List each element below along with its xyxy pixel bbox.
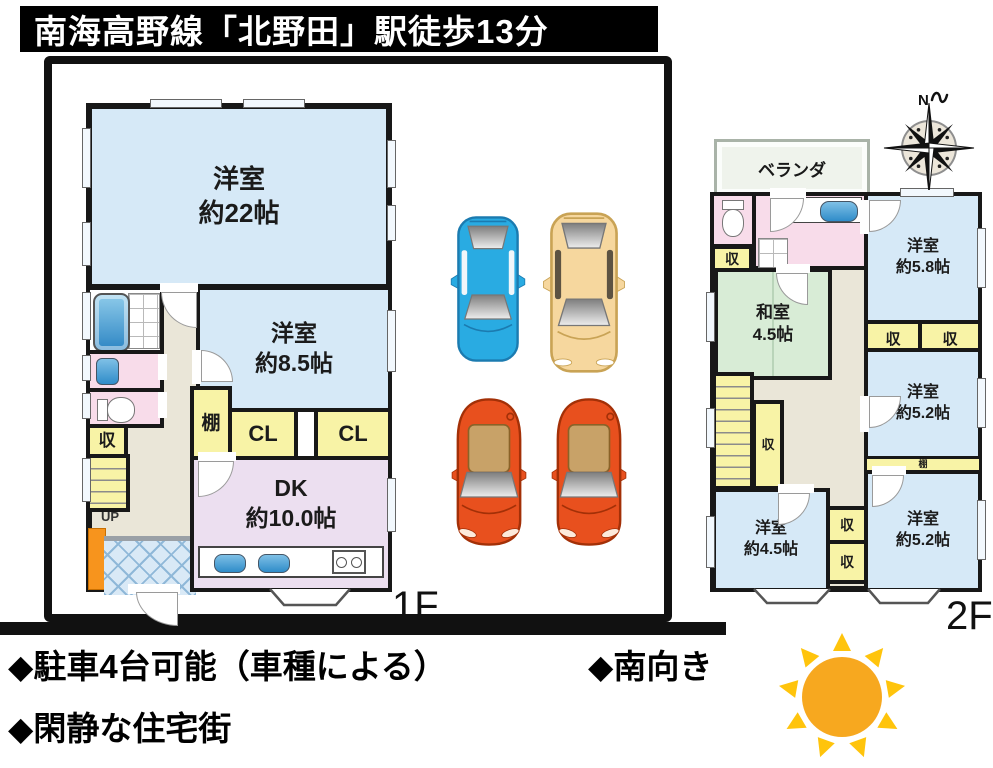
page-title: 南海高野線「北野田」駅徒歩13分 bbox=[34, 5, 549, 53]
toilet-icon bbox=[107, 397, 135, 423]
f2-room-45-size: 約4.5帖 bbox=[744, 540, 798, 561]
f2-washitsu-name: 和室 bbox=[756, 302, 790, 324]
floorplan-flyer: 南海高野線「北野田」駅徒歩13分 洋室 約22帖 収 UP 洋室 約8.5帖 棚… bbox=[0, 0, 993, 768]
door-opening bbox=[192, 350, 201, 384]
bath-tile-floor bbox=[128, 293, 160, 349]
window bbox=[387, 205, 396, 241]
f1-closet-2-label: CL bbox=[338, 420, 367, 449]
f1-stairs bbox=[86, 454, 130, 512]
door-opening bbox=[860, 200, 869, 234]
f2-storage-d-label: 収 bbox=[761, 437, 774, 454]
window bbox=[977, 378, 986, 428]
f2-storage-f-label: 収 bbox=[840, 553, 854, 571]
bay-window bbox=[752, 588, 832, 606]
f2-room-52a-name: 洋室 bbox=[907, 383, 939, 404]
bathtub-icon bbox=[93, 293, 130, 352]
f1-shelf-label: 棚 bbox=[201, 412, 220, 437]
door-opening bbox=[158, 392, 167, 418]
f1-storage-label: 収 bbox=[99, 430, 116, 452]
car-tan-icon bbox=[540, 210, 628, 375]
f2-storage-e: 収 bbox=[826, 506, 868, 544]
window bbox=[82, 393, 91, 419]
f2-storage-e-label: 収 bbox=[840, 516, 854, 534]
bay-window bbox=[268, 588, 352, 608]
door-opening bbox=[778, 484, 814, 493]
f1-closet-2: CL bbox=[314, 408, 392, 460]
footer-parking: ◆駐車4台可能（車種による） bbox=[8, 640, 447, 688]
car-orange-1-icon bbox=[448, 396, 530, 548]
door-opening bbox=[770, 188, 806, 198]
road-line bbox=[0, 622, 726, 635]
window bbox=[977, 228, 986, 288]
car-orange-2-icon bbox=[548, 396, 630, 548]
window bbox=[82, 128, 91, 188]
footer-facing: ◆南向き bbox=[588, 640, 712, 688]
f2-shelf-label: 棚 bbox=[918, 459, 927, 471]
f2-stairs bbox=[712, 372, 754, 490]
sun-icon bbox=[779, 624, 911, 766]
door-opening bbox=[160, 283, 198, 292]
bay-window bbox=[866, 588, 942, 606]
f1-room-85-size: 約8.5帖 bbox=[255, 349, 333, 379]
f2-storage-c-label: 収 bbox=[942, 330, 957, 350]
door-opening bbox=[860, 396, 869, 432]
window bbox=[82, 222, 91, 266]
floor2-tag: 2F bbox=[946, 594, 993, 639]
f1-shelf: 棚 bbox=[190, 386, 232, 462]
f2-storage-d: 収 bbox=[752, 400, 784, 490]
window bbox=[387, 140, 396, 188]
f1-storage: 収 bbox=[86, 424, 128, 458]
f2-storage-b-label: 収 bbox=[885, 330, 900, 350]
window bbox=[82, 292, 91, 340]
door-opening bbox=[776, 264, 810, 273]
door-opening bbox=[158, 354, 167, 380]
washbasin-icon bbox=[96, 358, 119, 385]
f1-room-22-size: 約22帖 bbox=[199, 197, 280, 231]
f1-room-22-name: 洋室 bbox=[213, 163, 265, 197]
f2-storage-f: 収 bbox=[826, 540, 868, 584]
f2-washitsu: 和室 4.5帖 bbox=[714, 268, 832, 380]
window bbox=[243, 99, 305, 108]
door-opening bbox=[198, 452, 236, 461]
kitchen-sink-1-icon bbox=[214, 554, 246, 573]
window bbox=[706, 408, 715, 448]
compass-icon: N bbox=[876, 88, 978, 190]
footer-quiet: ◆閑静な住宅街 bbox=[8, 702, 231, 750]
f1-closet-1-label: CL bbox=[248, 420, 277, 449]
title-banner: 南海高野線「北野田」駅徒歩13分 bbox=[20, 6, 658, 52]
f2-storage-a-label: 収 bbox=[725, 250, 739, 268]
window bbox=[706, 516, 715, 568]
f1-dk-size: 約10.0帖 bbox=[246, 504, 337, 534]
f2-toilet-icon bbox=[722, 209, 744, 237]
f1-closet-1: CL bbox=[228, 408, 298, 460]
f1-dk-name: DK bbox=[274, 474, 307, 504]
window bbox=[387, 478, 396, 532]
f2-washitsu-size: 4.5帖 bbox=[753, 324, 794, 346]
f1-room-22: 洋室 約22帖 bbox=[86, 103, 392, 290]
stairs-up-label: UP bbox=[88, 509, 132, 524]
f2-room-45: 洋室 約4.5帖 bbox=[712, 488, 830, 592]
car-blue-icon bbox=[448, 214, 528, 364]
window bbox=[82, 458, 91, 502]
f1-room-85-name: 洋室 bbox=[271, 319, 317, 349]
window bbox=[150, 99, 222, 108]
window bbox=[706, 292, 715, 342]
door-opening bbox=[872, 466, 906, 475]
burner-right bbox=[351, 557, 362, 568]
f2-room-58-size: 約5.8帖 bbox=[896, 258, 950, 279]
f2-room-52b-size: 約5.2帖 bbox=[896, 531, 950, 552]
f2-room-52a-size: 約5.2帖 bbox=[896, 404, 950, 425]
burner-left bbox=[336, 557, 347, 568]
f2-veranda-label: ベランダ bbox=[758, 156, 826, 181]
window bbox=[977, 500, 986, 560]
kitchen-sink-2-icon bbox=[258, 554, 290, 573]
window bbox=[82, 355, 91, 381]
f2-room-52b-name: 洋室 bbox=[907, 510, 939, 531]
floor1-tag: 1F bbox=[392, 584, 439, 629]
f2-room-58-name: 洋室 bbox=[907, 237, 939, 258]
stove-icon bbox=[332, 550, 366, 574]
window bbox=[387, 310, 396, 372]
compass-north-label: N bbox=[918, 92, 929, 109]
f2-sink-icon bbox=[820, 201, 858, 222]
